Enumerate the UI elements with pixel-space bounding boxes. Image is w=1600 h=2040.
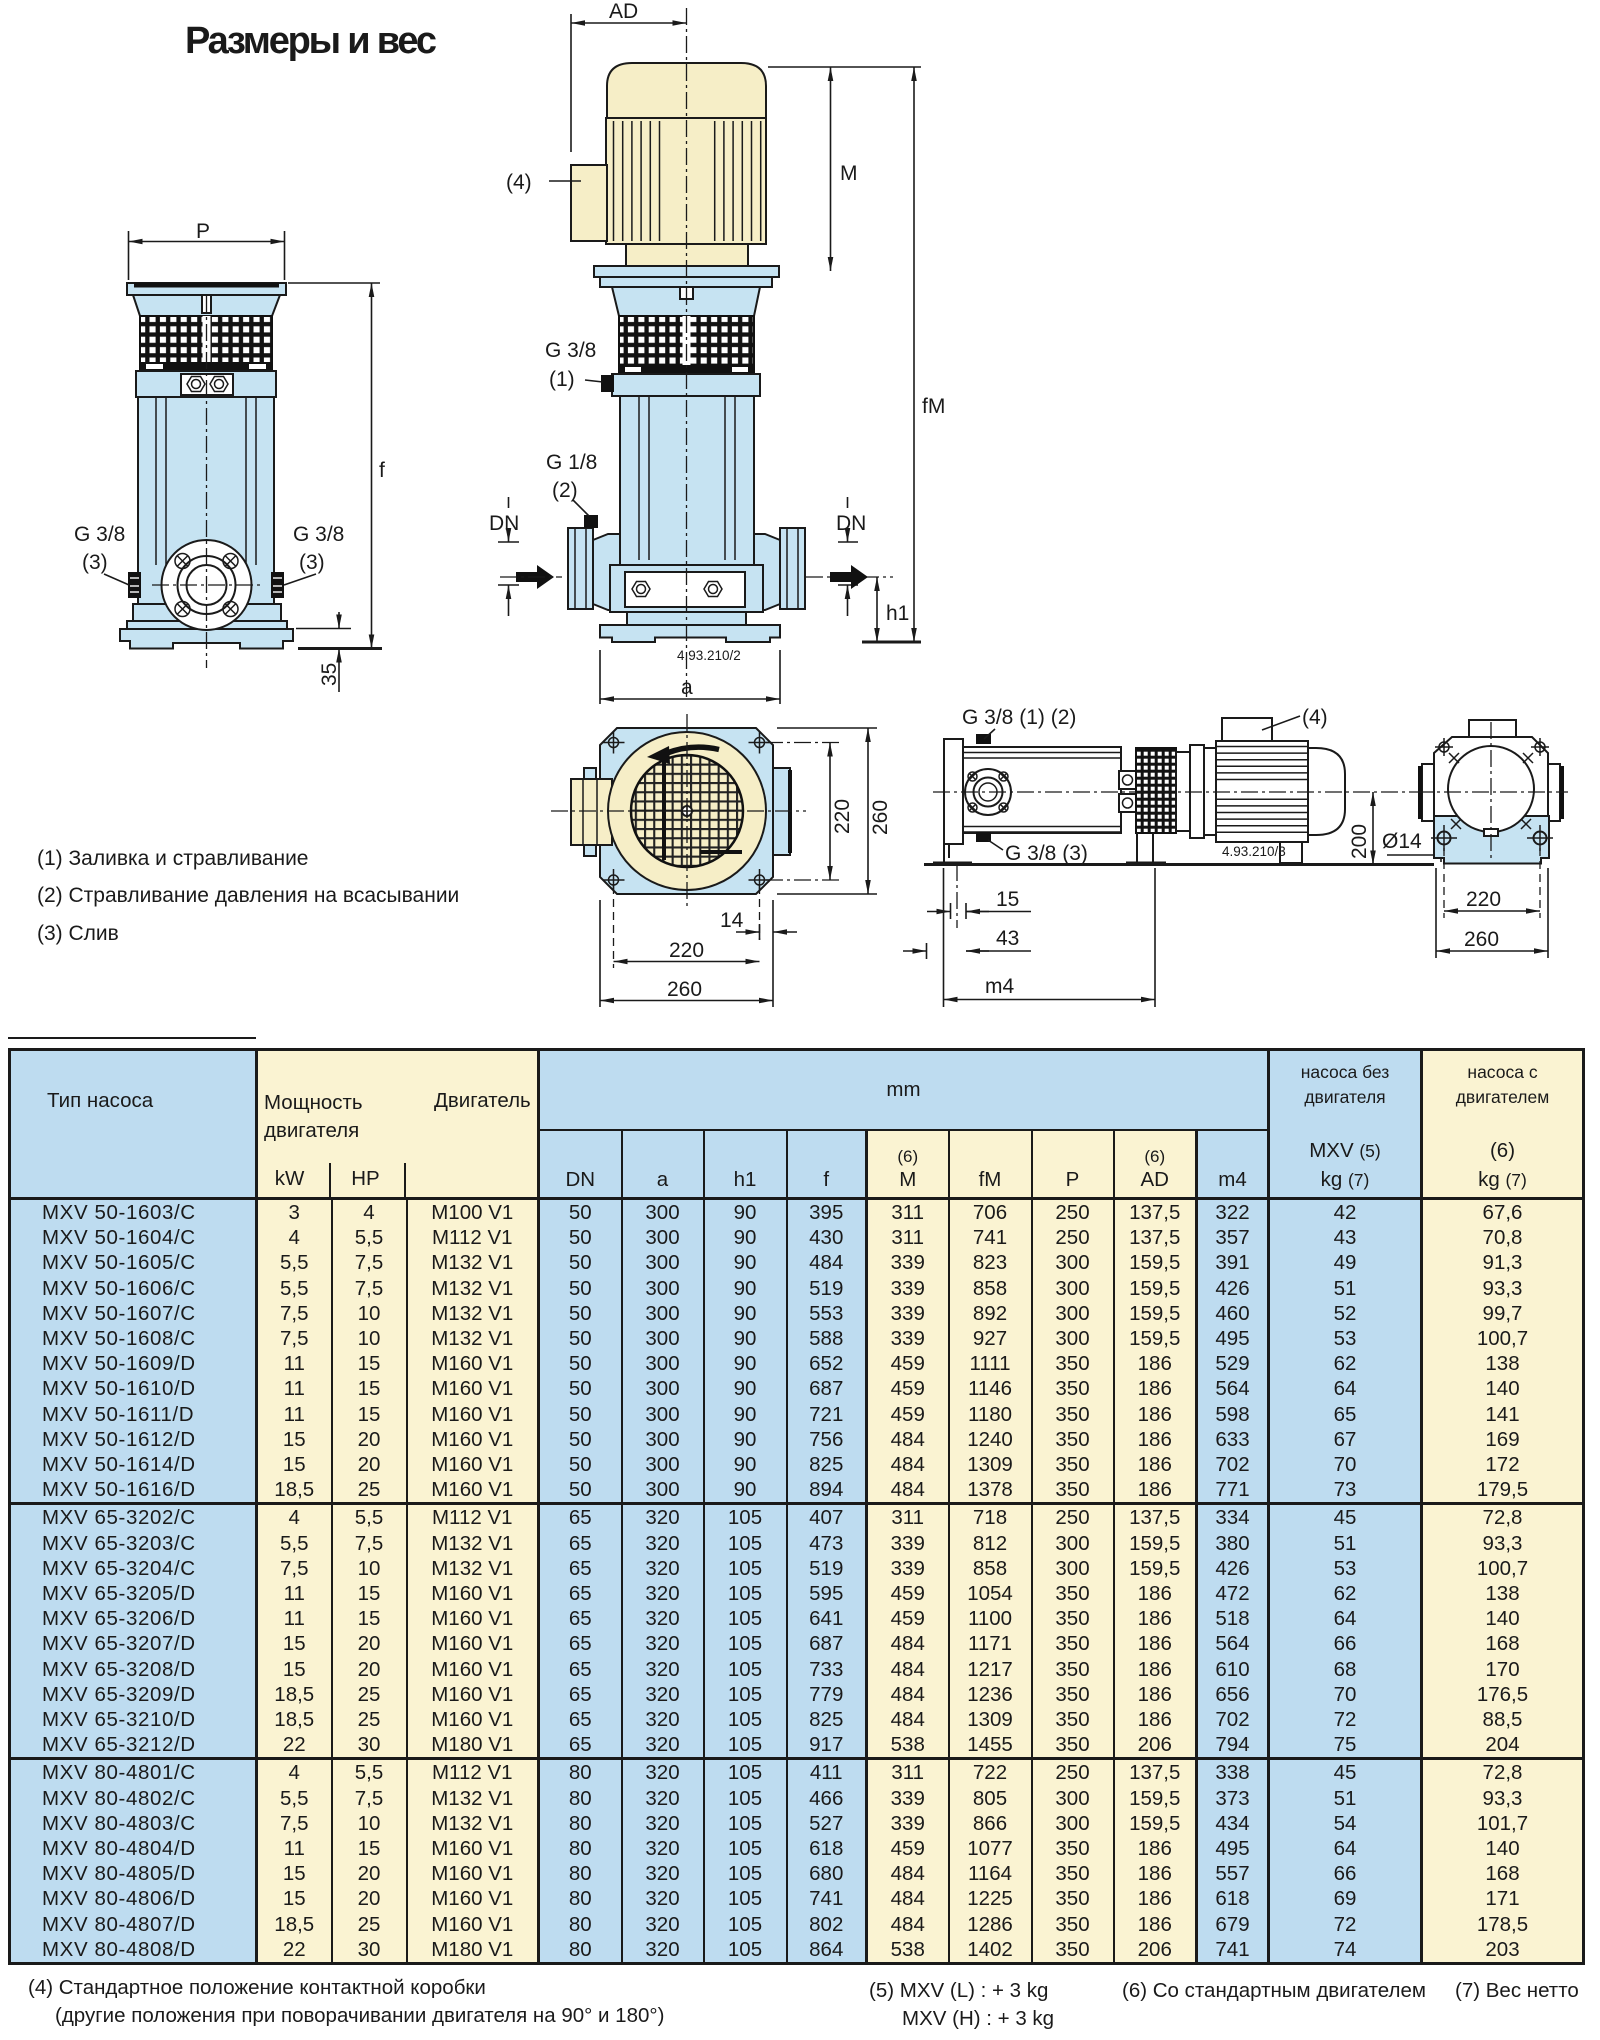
svg-text:200: 200 xyxy=(1348,824,1371,859)
svg-text:P: P xyxy=(196,220,210,243)
svg-text:AD: AD xyxy=(609,0,638,23)
svg-text:220: 220 xyxy=(1466,888,1501,911)
svg-text:DN: DN xyxy=(836,512,866,535)
svg-text:Ø14: Ø14 xyxy=(1382,830,1422,853)
svg-text:M: M xyxy=(840,162,858,185)
svg-text:220: 220 xyxy=(831,799,854,834)
svg-text:(2): (2) xyxy=(552,479,578,502)
svg-text:(1): (1) xyxy=(549,368,575,391)
svg-text:260: 260 xyxy=(667,978,702,1001)
svg-text:G 3/8 (3): G 3/8 (3) xyxy=(1005,842,1088,865)
svg-text:G 3/8: G 3/8 xyxy=(74,523,125,546)
svg-text:4.93.210/3: 4.93.210/3 xyxy=(1222,844,1286,859)
svg-text:14: 14 xyxy=(720,909,744,932)
svg-text:m4: m4 xyxy=(985,975,1014,998)
svg-text:260: 260 xyxy=(1464,928,1499,951)
svg-text:G 3/8: G 3/8 xyxy=(545,339,596,362)
svg-text:220: 220 xyxy=(669,939,704,962)
svg-text:35: 35 xyxy=(318,663,341,686)
svg-text:G 1/8: G 1/8 xyxy=(546,451,597,474)
svg-text:260: 260 xyxy=(869,800,892,835)
svg-text:h1: h1 xyxy=(886,602,909,625)
svg-text:(3): (3) xyxy=(82,551,108,574)
svg-text:DN: DN xyxy=(489,512,519,535)
svg-text:(4): (4) xyxy=(506,171,532,194)
svg-text:15: 15 xyxy=(996,888,1019,911)
svg-text:a: a xyxy=(681,676,693,699)
svg-text:43: 43 xyxy=(996,927,1019,950)
svg-text:f: f xyxy=(379,459,385,482)
svg-text:G 3/8: G 3/8 xyxy=(293,523,344,546)
svg-text:fM: fM xyxy=(922,395,945,418)
svg-text:4.93.210/2: 4.93.210/2 xyxy=(677,648,741,663)
svg-text:(4): (4) xyxy=(1302,706,1328,729)
svg-text:(3): (3) xyxy=(299,551,325,574)
svg-text:G 3/8 (1) (2): G 3/8 (1) (2) xyxy=(962,706,1076,729)
